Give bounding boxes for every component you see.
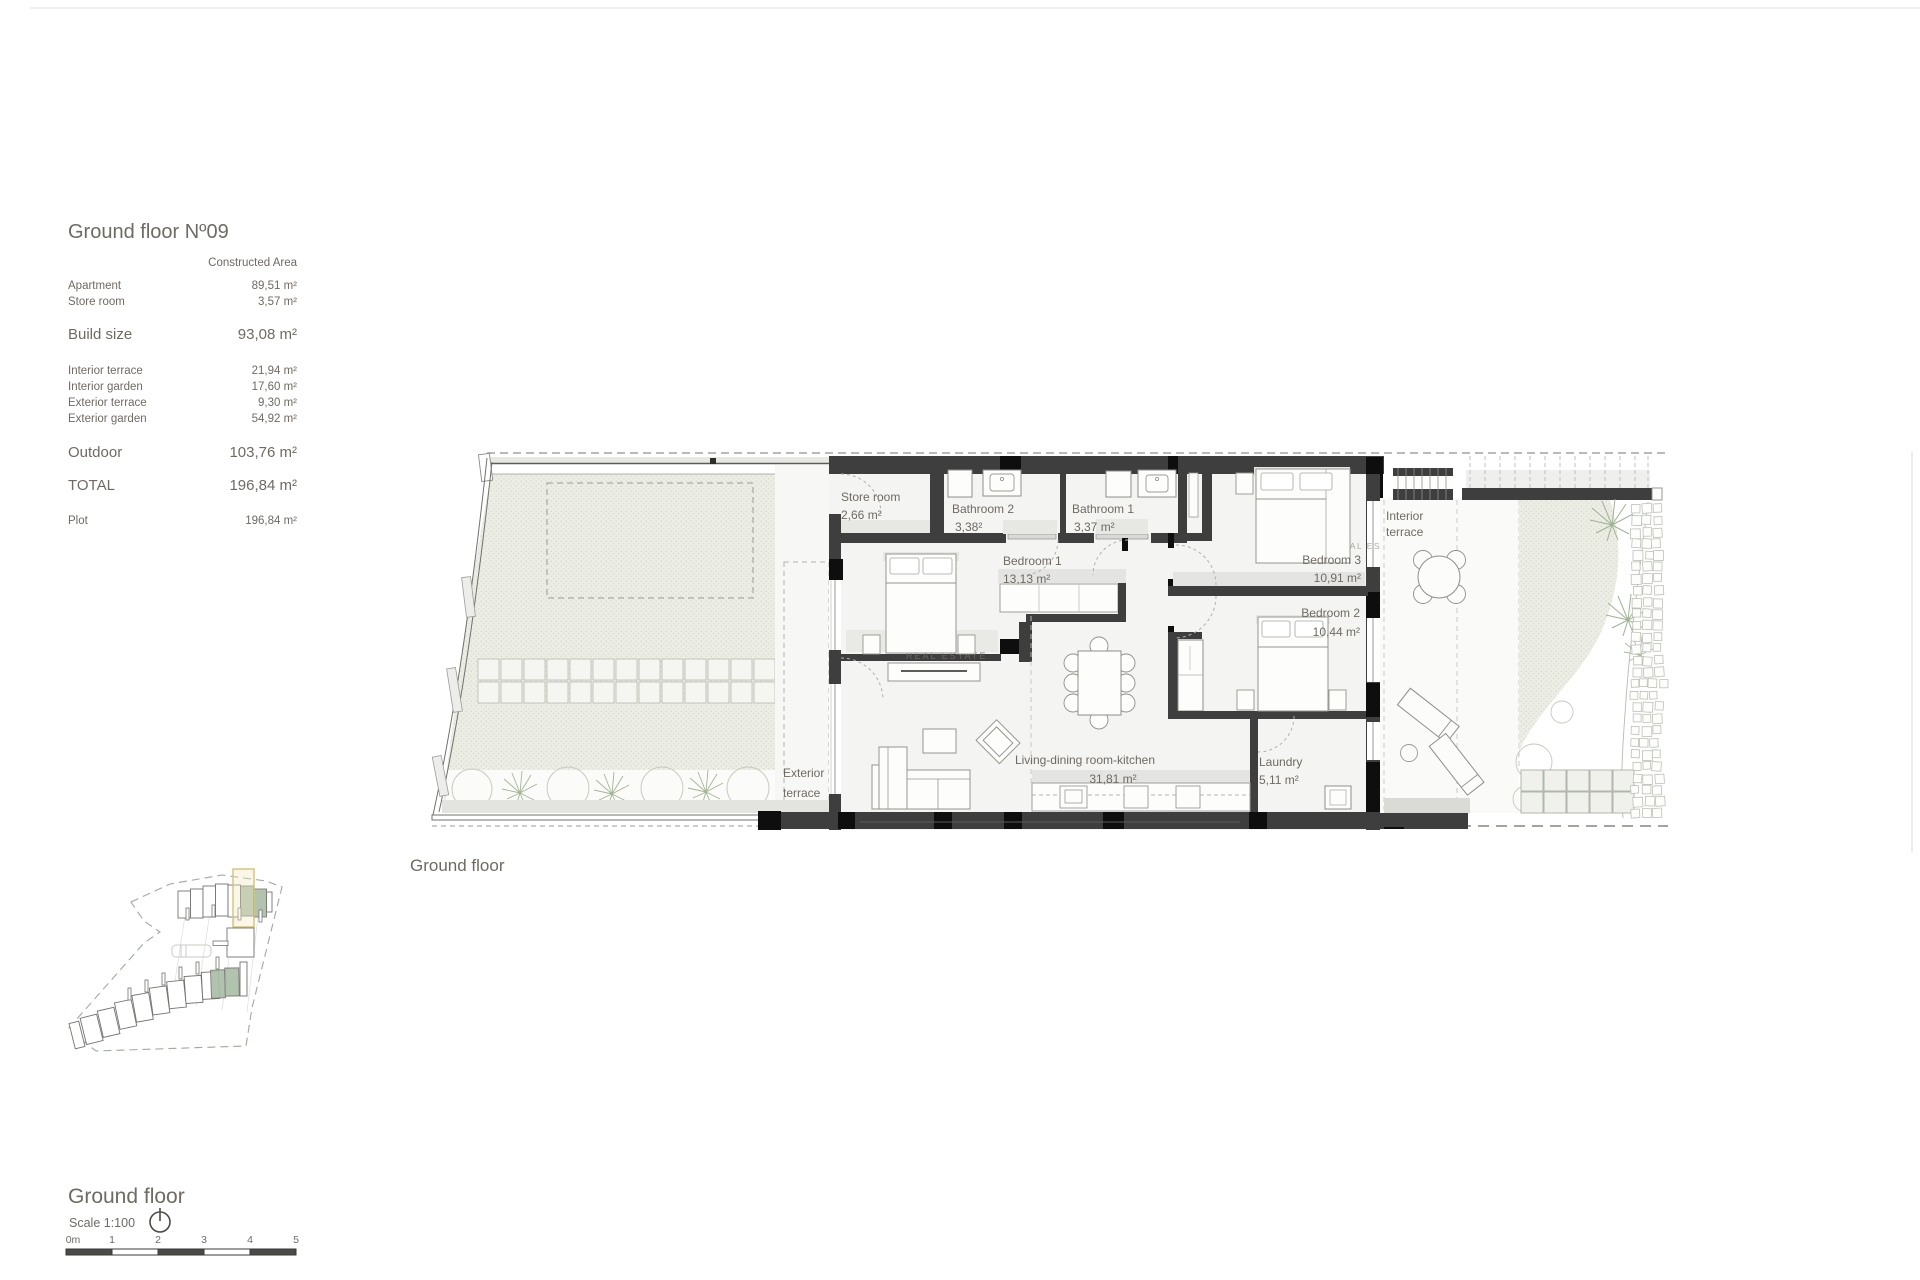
svg-text:13,13 m²: 13,13 m² <box>1003 572 1050 586</box>
svg-text:5,11 m²: 5,11 m² <box>1259 773 1299 787</box>
svg-text:Ground floor: Ground floor <box>68 1185 185 1208</box>
svg-text:196,84 m²: 196,84 m² <box>245 515 297 527</box>
svg-text:103,76 m²: 103,76 m² <box>229 444 297 461</box>
svg-text:TOTAL: TOTAL <box>68 477 115 494</box>
svg-text:21,94 m²: 21,94 m² <box>252 365 298 377</box>
svg-text:Apartment: Apartment <box>68 280 122 292</box>
svg-text:Exterior: Exterior <box>783 766 824 780</box>
svg-text:Scale 1:100: Scale 1:100 <box>69 1216 135 1230</box>
svg-text:Bathroom 2: Bathroom 2 <box>952 502 1014 516</box>
svg-text:89,51 m²: 89,51 m² <box>252 280 298 292</box>
svg-text:Ground floor: Ground floor <box>410 856 505 875</box>
svg-text:Store room: Store room <box>68 296 125 308</box>
svg-text:1: 1 <box>109 1234 115 1246</box>
svg-text:Outdoor: Outdoor <box>68 444 122 461</box>
svg-text:4: 4 <box>247 1234 253 1246</box>
svg-text:9,30 m²: 9,30 m² <box>258 397 297 409</box>
svg-text:Interior: Interior <box>1386 509 1423 523</box>
svg-text:Exterior terrace: Exterior terrace <box>68 397 147 409</box>
svg-text:93,08 m²: 93,08 m² <box>238 326 297 343</box>
svg-text:Bedroom 1: Bedroom 1 <box>1003 554 1062 568</box>
svg-text:3,38²: 3,38² <box>955 520 982 534</box>
svg-text:3,57 m²: 3,57 m² <box>258 296 297 308</box>
svg-text:10,44 m²: 10,44 m² <box>1313 625 1360 639</box>
svg-text:17,60 m²: 17,60 m² <box>252 381 298 393</box>
svg-text:31,81 m²: 31,81 m² <box>1089 772 1136 786</box>
svg-text:Constructed Area: Constructed Area <box>208 257 297 269</box>
svg-text:Build size: Build size <box>68 326 132 343</box>
svg-text:terrace: terrace <box>783 786 821 800</box>
svg-text:Ground floor Nº09: Ground floor Nº09 <box>68 221 229 243</box>
svg-text:0m: 0m <box>66 1234 81 1246</box>
svg-text:10,91 m²: 10,91 m² <box>1314 571 1361 585</box>
svg-text:5: 5 <box>293 1234 299 1246</box>
svg-text:Store room: Store room <box>841 490 900 504</box>
svg-text:Laundry: Laundry <box>1259 755 1302 769</box>
svg-text:196,84 m²: 196,84 m² <box>229 477 297 494</box>
svg-text:Bedroom 2: Bedroom 2 <box>1301 606 1360 620</box>
svg-text:Exterior garden: Exterior garden <box>68 413 147 425</box>
svg-text:3: 3 <box>201 1234 207 1246</box>
svg-text:Living-dining room-kitchen: Living-dining room-kitchen <box>1015 753 1155 767</box>
svg-text:2,66 m²: 2,66 m² <box>841 508 882 522</box>
svg-text:Interior garden: Interior garden <box>68 381 143 393</box>
svg-text:2: 2 <box>155 1234 161 1246</box>
svg-text:Plot: Plot <box>68 515 89 527</box>
svg-text:Interior terrace: Interior terrace <box>68 365 143 377</box>
svg-text:3,37 m²: 3,37 m² <box>1074 520 1115 534</box>
svg-text:Bathroom 1: Bathroom 1 <box>1072 502 1134 516</box>
svg-text:terrace: terrace <box>1386 525 1424 539</box>
svg-text:54,92 m²: 54,92 m² <box>252 413 298 425</box>
svg-text:Bedroom 3: Bedroom 3 <box>1302 553 1361 567</box>
